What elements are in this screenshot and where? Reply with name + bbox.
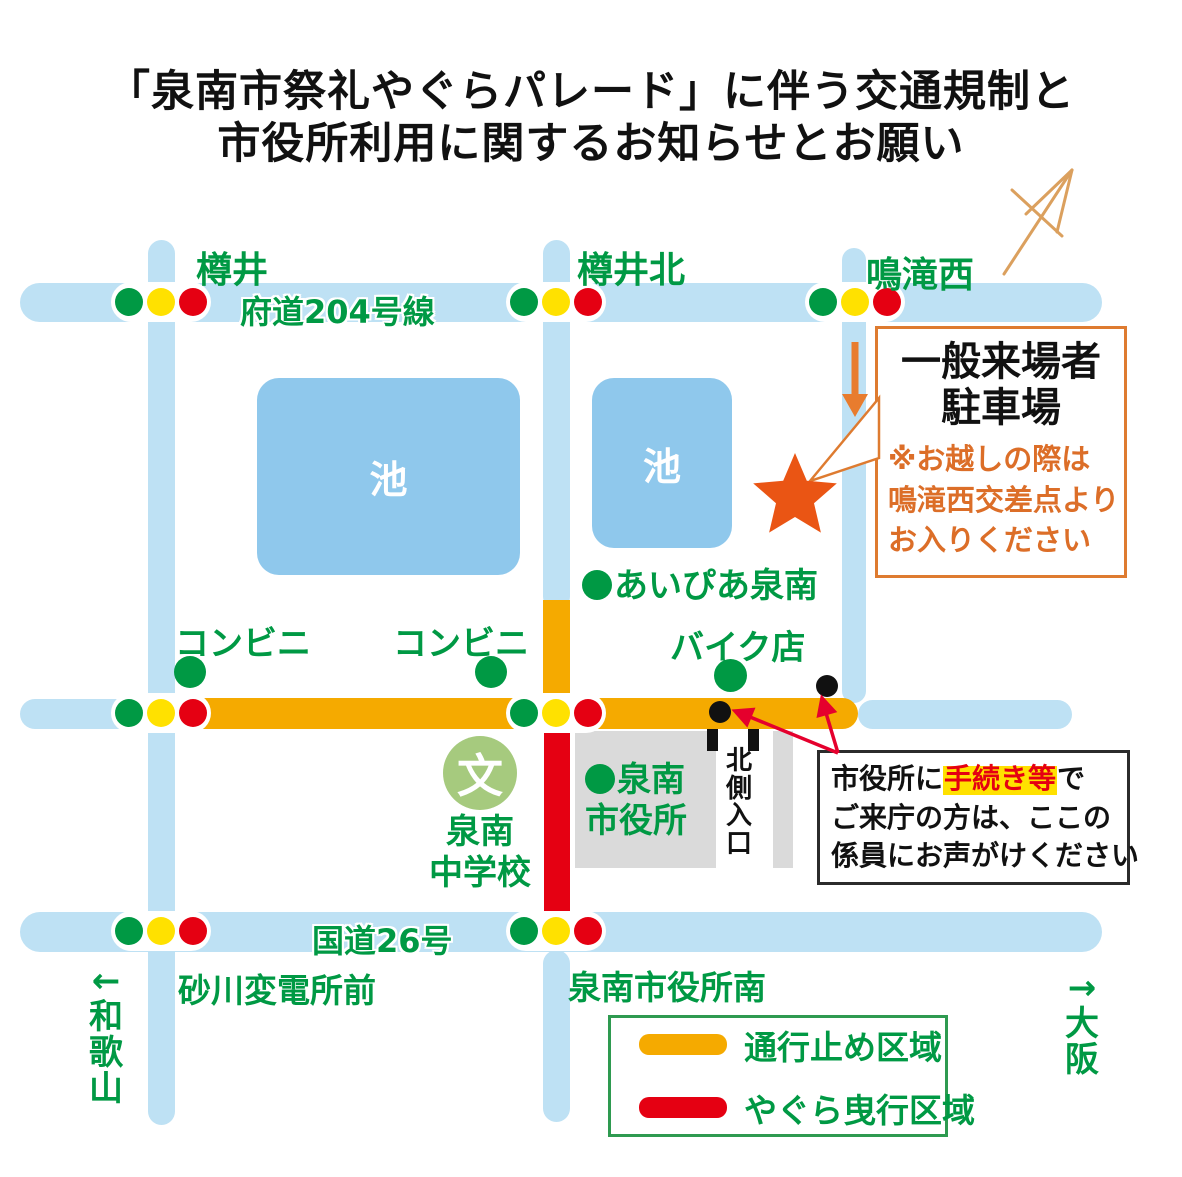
label-school: 泉南 中学校 xyxy=(400,812,560,894)
page-title: 「泉南市祭礼やぐらパレード」に伴う交通規制と 市役所利用に関するお知らせとお願い xyxy=(0,66,1182,171)
road-vertical-center-south xyxy=(543,950,570,1122)
parking-note: ※お越しの際は 鳴滝西交差点より お入りください xyxy=(888,439,1124,561)
school-line1: 泉南 xyxy=(446,812,514,852)
traffic-light-sunagawa xyxy=(111,911,211,951)
city-hall-dot xyxy=(585,764,615,794)
staff-seg2: で xyxy=(1057,762,1085,795)
legend-label-yagura: やぐら曳行区域 xyxy=(744,1084,975,1132)
entrance-post-east xyxy=(748,729,759,751)
north-arrow-icon xyxy=(1004,170,1072,274)
legend-label-closed: 通行止め区域 xyxy=(744,1021,942,1069)
legend-swatch-closed xyxy=(639,1034,727,1055)
staff-callout-box: 市役所に手続き等で ご来庁の方は、ここの 係員にお声がけください xyxy=(817,750,1130,885)
road-middle-east xyxy=(858,700,1072,729)
school-mark-glyph: 文 xyxy=(457,740,503,806)
bike-shop-dot xyxy=(714,659,747,692)
legend-swatch-yagura xyxy=(639,1097,727,1118)
pond-label: 池 xyxy=(643,436,681,491)
entrance-post-west xyxy=(707,729,718,751)
label-route26: 国道26号 xyxy=(312,916,453,962)
traffic-light-middle-center xyxy=(506,693,606,733)
school-line2: 中学校 xyxy=(429,853,531,893)
label-north-entrance: 北 側 入 口 xyxy=(722,748,756,858)
label-direction-wakayama: ← 和 歌 山 xyxy=(86,963,126,1107)
staff-point-dot-east xyxy=(816,675,838,697)
label-conbini-east: コンビニ xyxy=(393,616,529,665)
label-aipia: あいぴあ泉南 xyxy=(582,558,818,607)
label-tarui: 樽井 xyxy=(196,241,268,293)
legend-row-yagura: やぐら曳行区域 xyxy=(639,1084,945,1132)
parking-callout-box: 一般来場者 駐車場 ※お越しの際は 鳴滝西交差点より お入りください xyxy=(875,326,1127,578)
pond-label: 池 xyxy=(369,449,407,504)
city-hall-line1: 泉南 xyxy=(617,760,685,800)
school-mark-icon: 文 xyxy=(443,736,517,810)
pond-east: 池 xyxy=(592,378,732,548)
staff-line2: ご来庁の方は、ここの xyxy=(831,801,1111,834)
title-line-2: 市役所利用に関するお知らせとお願い xyxy=(0,118,1182,170)
pond-west: 池 xyxy=(257,378,520,575)
legend-row-closed: 通行止め区域 xyxy=(639,1021,945,1069)
traffic-light-shiyakusho-minami xyxy=(506,911,606,951)
traffic-light-middle-west xyxy=(111,693,211,733)
label-city-hall: 泉南 市役所 xyxy=(585,760,687,843)
road-vertical-west xyxy=(148,240,175,1125)
city-hall-block-east xyxy=(773,731,793,868)
city-hall-line2: 市役所 xyxy=(585,801,687,841)
parking-title: 一般来場者 駐車場 xyxy=(884,339,1118,431)
staff-line3: 係員にお声がけください xyxy=(831,839,1139,872)
aipia-dot xyxy=(582,570,612,600)
legend-box: 通行止め区域 やぐら曳行区域 xyxy=(608,1015,948,1137)
label-shiyakusho-minami: 泉南市役所南 xyxy=(568,961,766,1009)
label-narutaki-nishi: 鳴滝西 xyxy=(866,246,974,298)
conbini-east-dot xyxy=(475,656,507,688)
conbini-west-dot xyxy=(174,656,206,688)
label-sunagawa: 砂川変電所前 xyxy=(178,964,376,1012)
staff-seg1: 市役所に xyxy=(831,762,943,795)
parking-star-icon xyxy=(753,453,837,533)
staff-highlight: 手続き等 xyxy=(943,762,1057,795)
title-line-1: 「泉南市祭礼やぐらパレード」に伴う交通規制と xyxy=(0,66,1182,118)
label-tarui-kita: 樽井北 xyxy=(577,241,685,293)
label-direction-osaka: → 大 阪 xyxy=(1062,970,1102,1078)
staff-point-dot-west xyxy=(709,701,731,723)
aipia-text: あいぴあ泉南 xyxy=(614,566,818,606)
traffic-notice-poster: 「泉南市祭礼やぐらパレード」に伴う交通規制と 市役所利用に関するお知らせとお願い… xyxy=(0,0,1182,1177)
label-route204: 府道204号線 xyxy=(240,287,435,333)
